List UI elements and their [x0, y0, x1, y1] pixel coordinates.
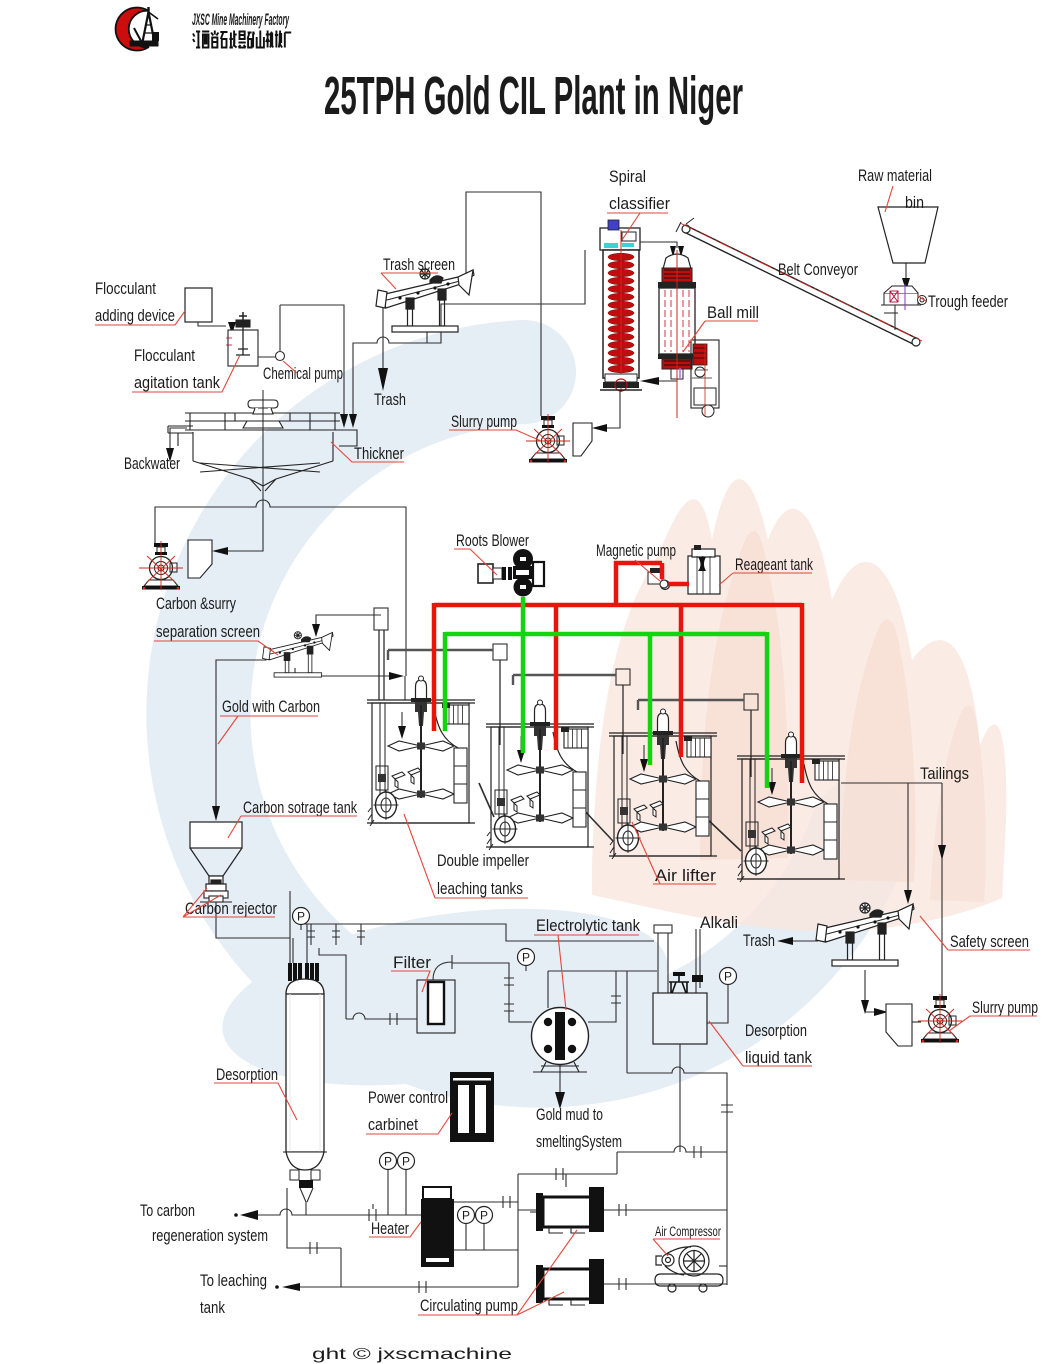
- svg-text:ght © jxscmachine: ght © jxscmachine: [312, 1346, 512, 1363]
- svg-text:classifier: classifier: [609, 194, 670, 213]
- svg-text:Ball mill: Ball mill: [707, 303, 759, 322]
- svg-text:Trash screen: Trash screen: [383, 255, 455, 274]
- svg-text:Spiral: Spiral: [609, 167, 646, 186]
- svg-text:leaching tanks: leaching tanks: [437, 879, 523, 898]
- svg-text:Trash: Trash: [374, 390, 406, 409]
- svg-text:Backwater: Backwater: [124, 454, 180, 473]
- svg-text:carbinet: carbinet: [368, 1115, 418, 1134]
- svg-text:adding device: adding device: [95, 306, 175, 325]
- svg-text:JXSC Mine Machinery Factory: JXSC Mine Machinery Factory: [192, 11, 289, 29]
- svg-text:Power control: Power control: [368, 1088, 448, 1107]
- svg-text:Flocculant: Flocculant: [134, 346, 195, 365]
- svg-text:To carbon: To carbon: [140, 1201, 195, 1220]
- svg-text:Desorption: Desorption: [216, 1065, 278, 1084]
- svg-text:Air lifter: Air lifter: [655, 866, 716, 885]
- svg-text:Desorption: Desorption: [745, 1021, 807, 1040]
- svg-text:Safety screen: Safety screen: [950, 932, 1029, 951]
- svg-text:Double impeller: Double impeller: [437, 851, 529, 870]
- svg-text:liquid tank: liquid tank: [745, 1048, 812, 1067]
- svg-text:Raw material: Raw material: [858, 166, 932, 185]
- svg-text:Air Compressor: Air Compressor: [655, 1224, 721, 1239]
- svg-text:regeneration system: regeneration system: [152, 1226, 268, 1245]
- svg-text:Slurry pump: Slurry pump: [972, 998, 1038, 1017]
- svg-text:Trough feeder: Trough feeder: [928, 292, 1008, 311]
- svg-text:Thickner: Thickner: [354, 444, 404, 463]
- svg-text:Heater: Heater: [371, 1219, 409, 1238]
- svg-text:Slurry pump: Slurry pump: [451, 412, 517, 431]
- svg-text:Circulating pump: Circulating pump: [420, 1296, 518, 1315]
- svg-text:Tailings: Tailings: [920, 764, 969, 783]
- svg-text:Carbon rejector: Carbon rejector: [185, 899, 277, 918]
- svg-text:Gold mud to: Gold mud to: [536, 1105, 603, 1124]
- svg-text:Alkali: Alkali: [700, 913, 738, 932]
- svg-text:Reageant tank: Reageant tank: [735, 555, 813, 574]
- svg-text:Flocculant: Flocculant: [95, 279, 156, 298]
- svg-text:bin: bin: [905, 193, 924, 212]
- svg-text:tank: tank: [200, 1298, 225, 1317]
- svg-text:separation screen: separation screen: [156, 622, 260, 641]
- svg-text:Filter: Filter: [393, 953, 431, 972]
- svg-text:25TPH Gold CIL Plant in Niger: 25TPH Gold CIL Plant in Niger: [324, 66, 743, 126]
- svg-text:Roots Blower: Roots Blower: [456, 531, 529, 550]
- svg-text:smeltingSystem: smeltingSystem: [536, 1132, 622, 1151]
- svg-text:Electrolytic tank: Electrolytic tank: [536, 916, 640, 935]
- svg-text:Trash: Trash: [743, 931, 775, 950]
- svg-text:agitation tank: agitation tank: [134, 373, 220, 392]
- svg-text:Gold with Carbon: Gold with Carbon: [222, 697, 320, 716]
- svg-text:Carbon &surry: Carbon &surry: [156, 594, 236, 613]
- svg-text:Belt Conveyor: Belt Conveyor: [778, 260, 858, 279]
- svg-text:Carbon sotrage tank: Carbon sotrage tank: [243, 798, 357, 817]
- svg-text:Magnetic pump: Magnetic pump: [596, 541, 676, 560]
- svg-text:Chemical pump: Chemical pump: [263, 364, 343, 383]
- svg-text:To leaching: To leaching: [200, 1271, 267, 1290]
